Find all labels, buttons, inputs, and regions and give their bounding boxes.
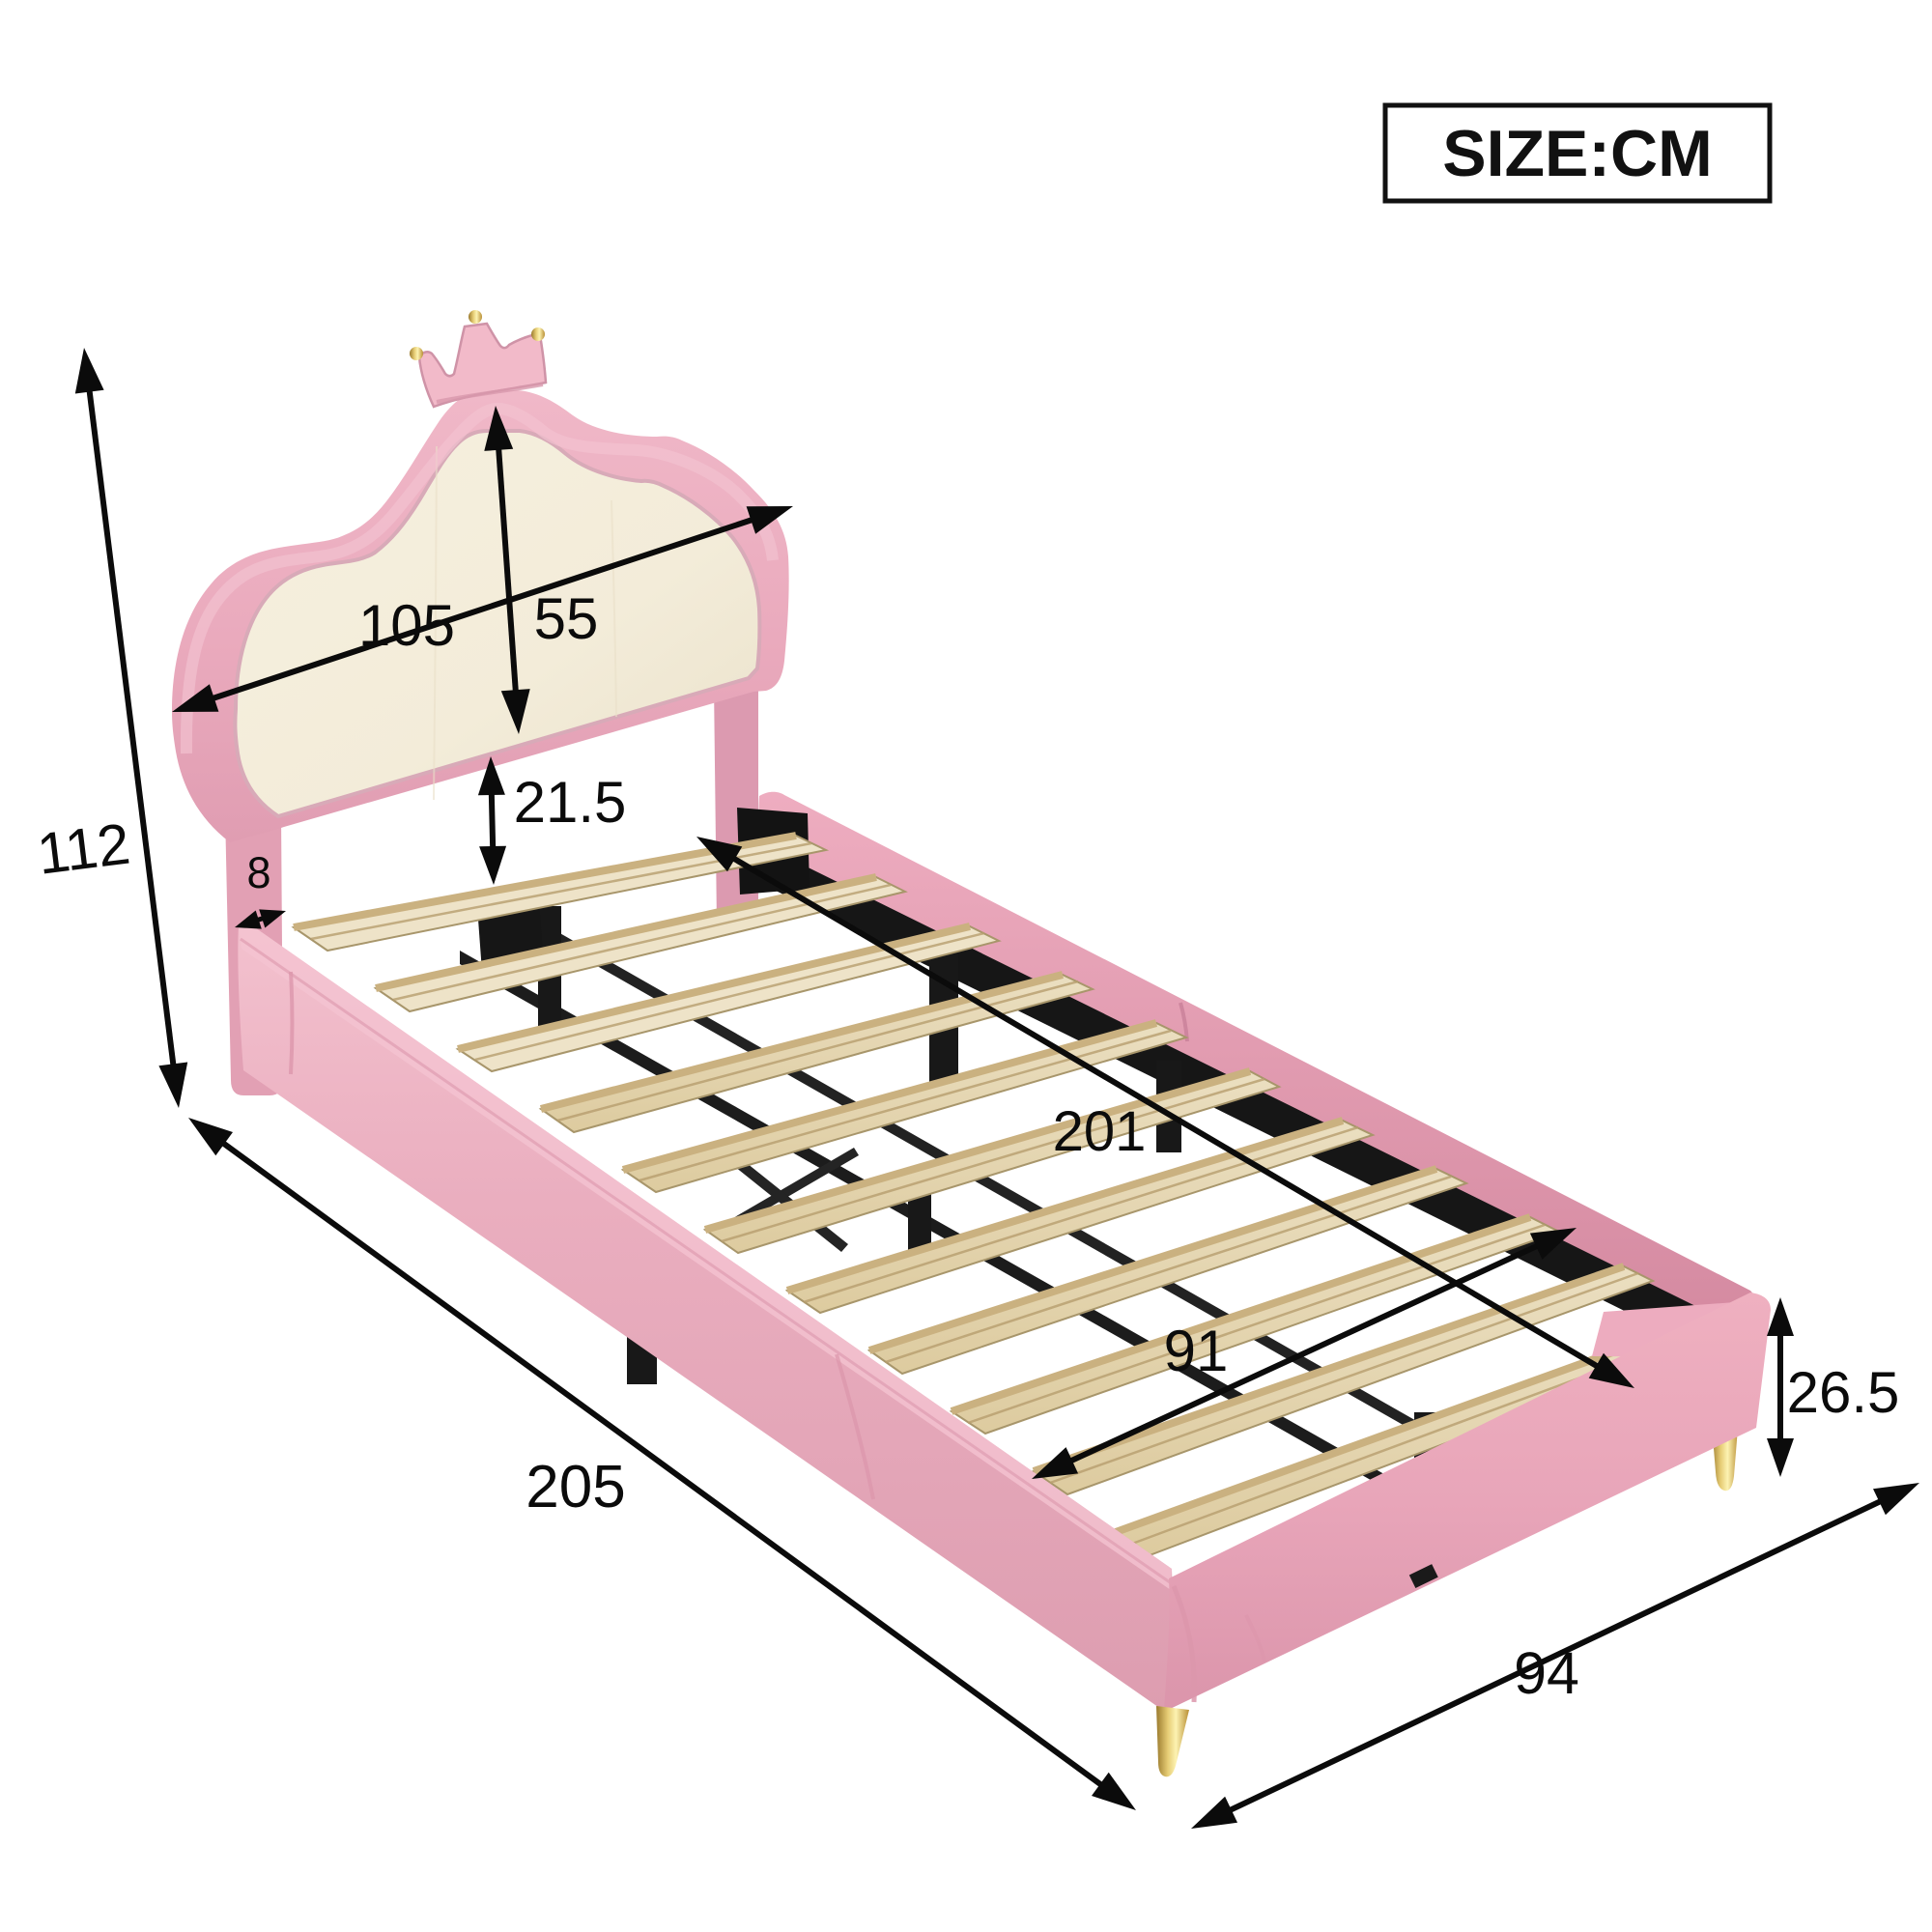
svg-text:26.5: 26.5 [1787,1360,1900,1425]
svg-text:201: 201 [1053,1100,1147,1163]
svg-text:94: 94 [1514,1640,1579,1706]
svg-text:105: 105 [358,593,455,658]
svg-text:SIZE:CM: SIZE:CM [1442,117,1713,190]
svg-text:205: 205 [526,1454,625,1520]
svg-text:55: 55 [534,586,599,651]
svg-text:21.5: 21.5 [514,770,627,835]
svg-text:8: 8 [246,848,270,897]
svg-text:91: 91 [1164,1319,1229,1383]
svg-text:112: 112 [34,811,133,887]
